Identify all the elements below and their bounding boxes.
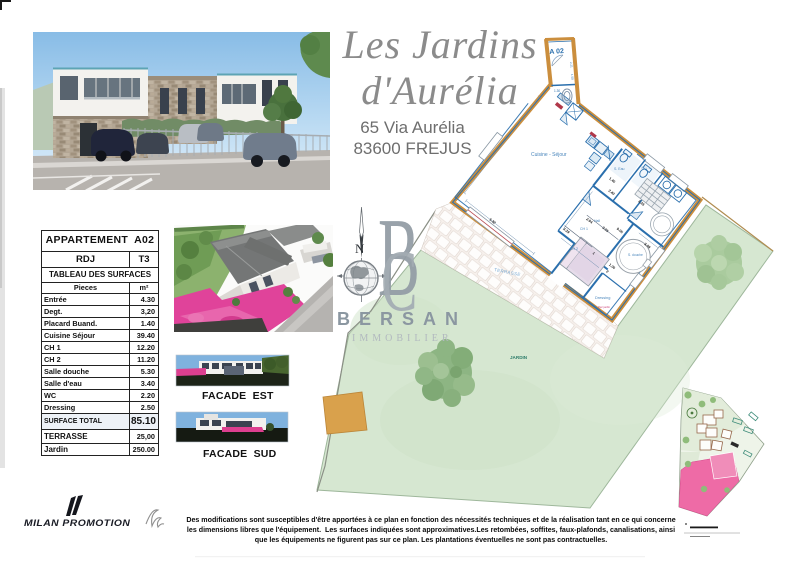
- svg-text:JARDIN: JARDIN: [510, 355, 528, 360]
- svg-text:CEL 1: CEL 1: [641, 166, 650, 170]
- svg-text:2.21: 2.21: [569, 62, 574, 68]
- svg-text:N: N: [355, 241, 365, 256]
- svg-text:A 02: A 02: [549, 48, 564, 56]
- svg-text:S. Eau: S. Eau: [614, 167, 625, 171]
- svg-text:CH 2: CH 2: [570, 247, 578, 251]
- svg-text:Cuisine - Séjour: Cuisine - Séjour: [531, 152, 567, 158]
- svg-text:Rez jardin: Rez jardin: [598, 305, 611, 309]
- svg-text:Hall: Hall: [594, 219, 600, 223]
- svg-text:1.50: 1.50: [570, 74, 575, 80]
- svg-text:Dressing: Dressing: [595, 295, 610, 300]
- svg-text:CH 1: CH 1: [580, 227, 588, 231]
- svg-text:S. douche: S. douche: [628, 253, 643, 257]
- svg-text:1.30: 1.30: [554, 89, 560, 93]
